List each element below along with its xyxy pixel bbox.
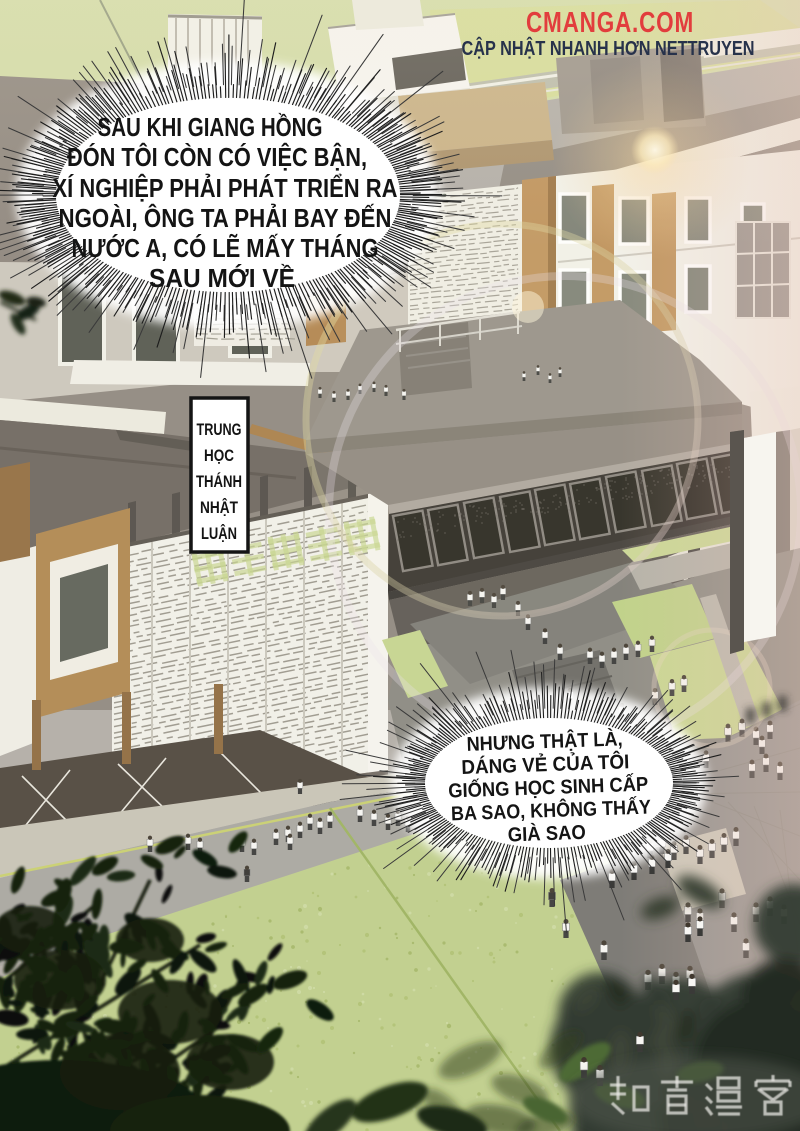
svg-text:SAU MỚI VỀ: SAU MỚI VỀ <box>149 263 295 293</box>
svg-text:NƯỚC A, CÓ LẼ MẤY THÁNG: NƯỚC A, CÓ LẼ MẤY THÁNG <box>72 233 379 263</box>
svg-text:TRUNG: TRUNG <box>197 420 242 439</box>
svg-text:SAU KHI GIANG HỒNG: SAU KHI GIANG HỒNG <box>98 112 323 142</box>
svg-text:CMANGA.COM: CMANGA.COM <box>526 7 694 39</box>
svg-text:CẬP NHẬT NHANH HƠN NETTRUYEN: CẬP NHẬT NHANH HƠN NETTRUYEN <box>462 36 755 60</box>
svg-text:NGOÀI, ÔNG TA PHẢI BAY ĐẾN: NGOÀI, ÔNG TA PHẢI BAY ĐẾN <box>59 203 392 233</box>
svg-text:HỌC: HỌC <box>204 446 234 465</box>
svg-text:XÍ NGHIỆP PHẢI PHÁT TRIỂN RA: XÍ NGHIỆP PHẢI PHÁT TRIỂN RA <box>53 173 398 203</box>
svg-text:THÁNH: THÁNH <box>196 472 242 491</box>
svg-text:LUẬN: LUẬN <box>201 524 237 543</box>
svg-text:ĐÓN TÔI CÒN CÓ VIỆC BẬN,: ĐÓN TÔI CÒN CÓ VIỆC BẬN, <box>67 142 367 172</box>
svg-text:GIÀ SAO: GIÀ SAO <box>507 821 586 847</box>
svg-text:NHẬT: NHẬT <box>200 498 238 517</box>
